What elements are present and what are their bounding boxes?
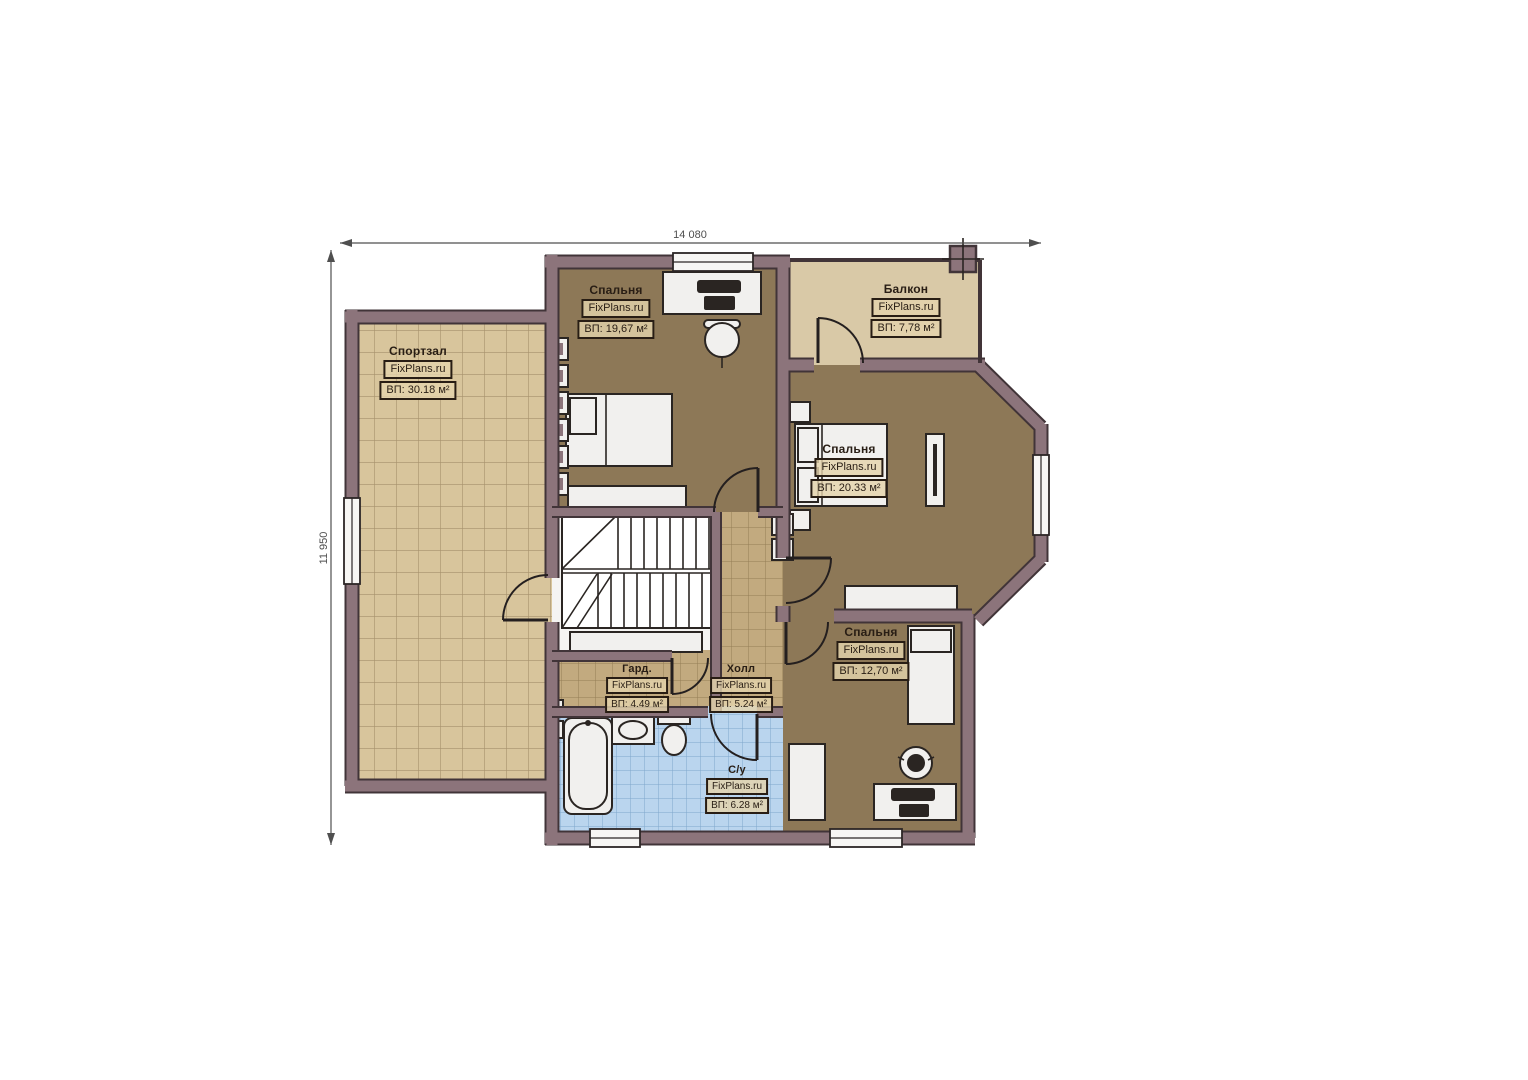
bay-window <box>1033 455 1049 535</box>
gym-window <box>344 498 360 584</box>
room-site-badge: FixPlans.ru <box>383 360 452 379</box>
room-label-bathroom: С/у FixPlans.ru ВП: 6.28 м² <box>705 764 769 814</box>
toilet <box>662 725 686 755</box>
room-label-bedroom-right: Спальня FixPlans.ru ВП: 20.33 м² <box>810 442 887 498</box>
room-site-badge: FixPlans.ru <box>871 298 940 317</box>
room-area: ВП: 5.24 м² <box>709 696 773 713</box>
staircase <box>562 514 712 652</box>
horizontal-dimension: 14 080 <box>340 229 1041 247</box>
room-site-badge: FixPlans.ru <box>706 778 768 795</box>
computer-icon <box>697 280 741 293</box>
room-area: ВП: 12,70 м² <box>832 662 909 681</box>
room-site-badge: FixPlans.ru <box>710 677 772 694</box>
computer-icon <box>704 296 735 310</box>
bathroom-window <box>590 829 640 847</box>
room-area: ВП: 30.18 м² <box>379 381 456 400</box>
potted-plant <box>898 747 934 779</box>
room-name: Спальня <box>577 283 654 297</box>
dimension-label-horizontal: 14 080 <box>673 229 707 241</box>
room-label-bedroom-bottom: Спальня FixPlans.ru ВП: 12,70 м² <box>832 625 909 681</box>
room-name: Гард. <box>605 663 669 675</box>
room-label-balcony: Балкон FixPlans.ru ВП: 7,78 м² <box>870 282 941 338</box>
vertical-dimension: 11 950 <box>318 250 335 845</box>
room-site-badge: FixPlans.ru <box>836 641 905 660</box>
room-label-bedroom-top: Спальня FixPlans.ru ВП: 19,67 м² <box>577 283 654 339</box>
room-label-hall: Холл FixPlans.ru ВП: 5.24 м² <box>709 663 773 713</box>
room-name: Спортзал <box>379 344 456 358</box>
room-area: ВП: 7,78 м² <box>870 319 941 338</box>
room-area: ВП: 20.33 м² <box>810 479 887 498</box>
room-area: ВП: 6.28 м² <box>705 797 769 814</box>
room-area: ВП: 4.49 м² <box>605 696 669 713</box>
room-name: С/у <box>705 764 769 776</box>
room-label-wardrobe: Гард. FixPlans.ru ВП: 4.49 м² <box>605 663 669 713</box>
computer-icon <box>891 788 935 801</box>
bedroom-bottom-window <box>830 829 902 847</box>
nightstand <box>790 402 810 422</box>
pillow <box>570 398 596 434</box>
room-label-gym: Спортзал FixPlans.ru ВП: 30.18 м² <box>379 344 456 400</box>
floor-plan-page: 14 080 11 950 Спортзал FixPlans.ru ВП: 3… <box>0 0 1528 1080</box>
office-chair <box>705 323 739 357</box>
room-name: Спальня <box>810 442 887 456</box>
faucet-icon <box>585 720 591 726</box>
room-area: ВП: 19,67 м² <box>577 320 654 339</box>
bathtub <box>569 723 607 809</box>
dimension-label-vertical: 11 950 <box>318 532 330 565</box>
floor-plan-drawing: 14 080 11 950 <box>0 0 1528 1080</box>
room-site-badge: FixPlans.ru <box>606 677 668 694</box>
mirror <box>933 444 937 496</box>
room-name: Балкон <box>870 282 941 296</box>
room-name: Спальня <box>832 625 909 639</box>
bedroom-top-window <box>673 253 753 271</box>
room-name: Холл <box>709 663 773 675</box>
sink <box>619 721 647 739</box>
pillow <box>911 630 951 652</box>
room-site-badge: FixPlans.ru <box>814 458 883 477</box>
wardrobe-cabinet <box>789 744 825 820</box>
computer-icon <box>899 804 929 817</box>
stair-cabinet <box>570 632 702 652</box>
room-site-badge: FixPlans.ru <box>581 299 650 318</box>
